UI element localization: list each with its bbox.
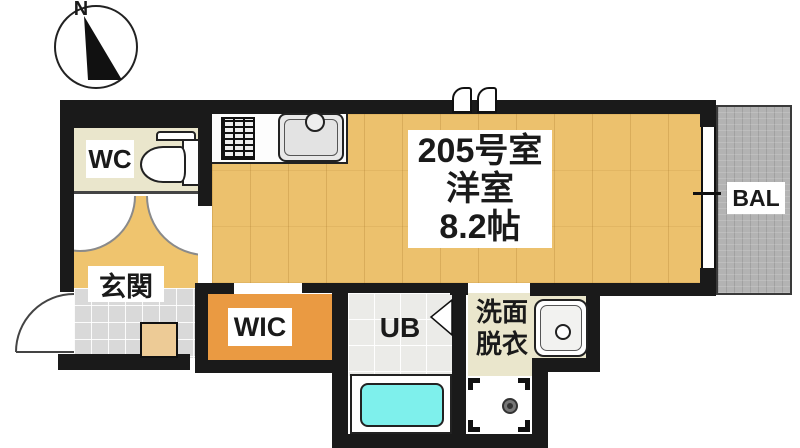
bathtub-icon [360,383,444,427]
unit-bath-label: UB [360,310,440,346]
toilet-bowl-icon [140,146,186,183]
entrance-label-text: 玄関 [99,265,153,304]
pan-corner [468,378,480,390]
pan-corner [468,420,480,432]
wall-ub-left [332,283,348,448]
wall-hatched [302,283,452,293]
entrance-door-arc [16,294,74,352]
washroom-label-line2: 脱衣 [476,328,528,360]
shoe-cabinet [140,322,178,358]
door-swing-right [146,196,198,256]
pan-corner [518,420,530,432]
sink-icon [278,113,344,162]
unit-bath-label-text: UB [380,312,420,344]
balcony-label: BAL [727,182,785,214]
bathtub-surround [350,374,452,434]
main-room-label: 205号室 洋室 8.2帖 [408,130,552,248]
wall-wic-bottom [195,360,345,373]
balcony-window-tick [693,192,721,195]
wall-top-left [60,100,212,128]
wc-label: WC [86,140,134,178]
north-letter: N [74,0,88,21]
washbasin-icon [534,299,588,357]
balcony-label-text: BAL [732,185,779,212]
drain-icon [502,398,518,414]
wall-bath-bottom [332,434,548,448]
wall-ub-right [452,293,466,448]
toilet-lid [156,131,196,141]
room-size: 8.2帖 [439,208,520,246]
vent-icon [452,87,472,113]
wc-label-text: WC [88,144,131,175]
entrance-label: 玄関 [88,266,164,302]
wic-label-text: WIC [234,312,286,343]
floor-plan: WC 玄関 205号室 洋室 8.2帖 WIC UB 洗面 脱衣 BAL N [0,0,800,448]
wall-washroom-right [586,283,600,372]
stove-icon [221,117,255,160]
wall-wic-top [198,283,234,294]
wall-main-bottom-right [530,283,716,296]
wall-hall-right [198,100,212,206]
wall-right-bottom-corner [700,268,716,296]
faucet-icon [305,112,325,132]
room-type: 洋室 [446,170,514,208]
washroom-label: 洗面 脱衣 [466,296,538,360]
washroom-label-line1: 洗面 [476,296,528,328]
washer-pan-icon [466,376,532,434]
door-swing-left [74,196,136,252]
vent-icon [477,87,497,113]
wic-label: WIC [228,308,292,346]
wall-right-top-corner [700,100,716,127]
pan-corner [518,378,530,390]
washroom-floor-lower [468,358,532,376]
basin-drain [555,324,571,340]
wc-wall-line [74,191,212,194]
room-number: 205号室 [418,132,543,170]
compass-north-label: N [66,0,96,21]
balcony-window [701,127,716,268]
wall-left [60,100,74,292]
